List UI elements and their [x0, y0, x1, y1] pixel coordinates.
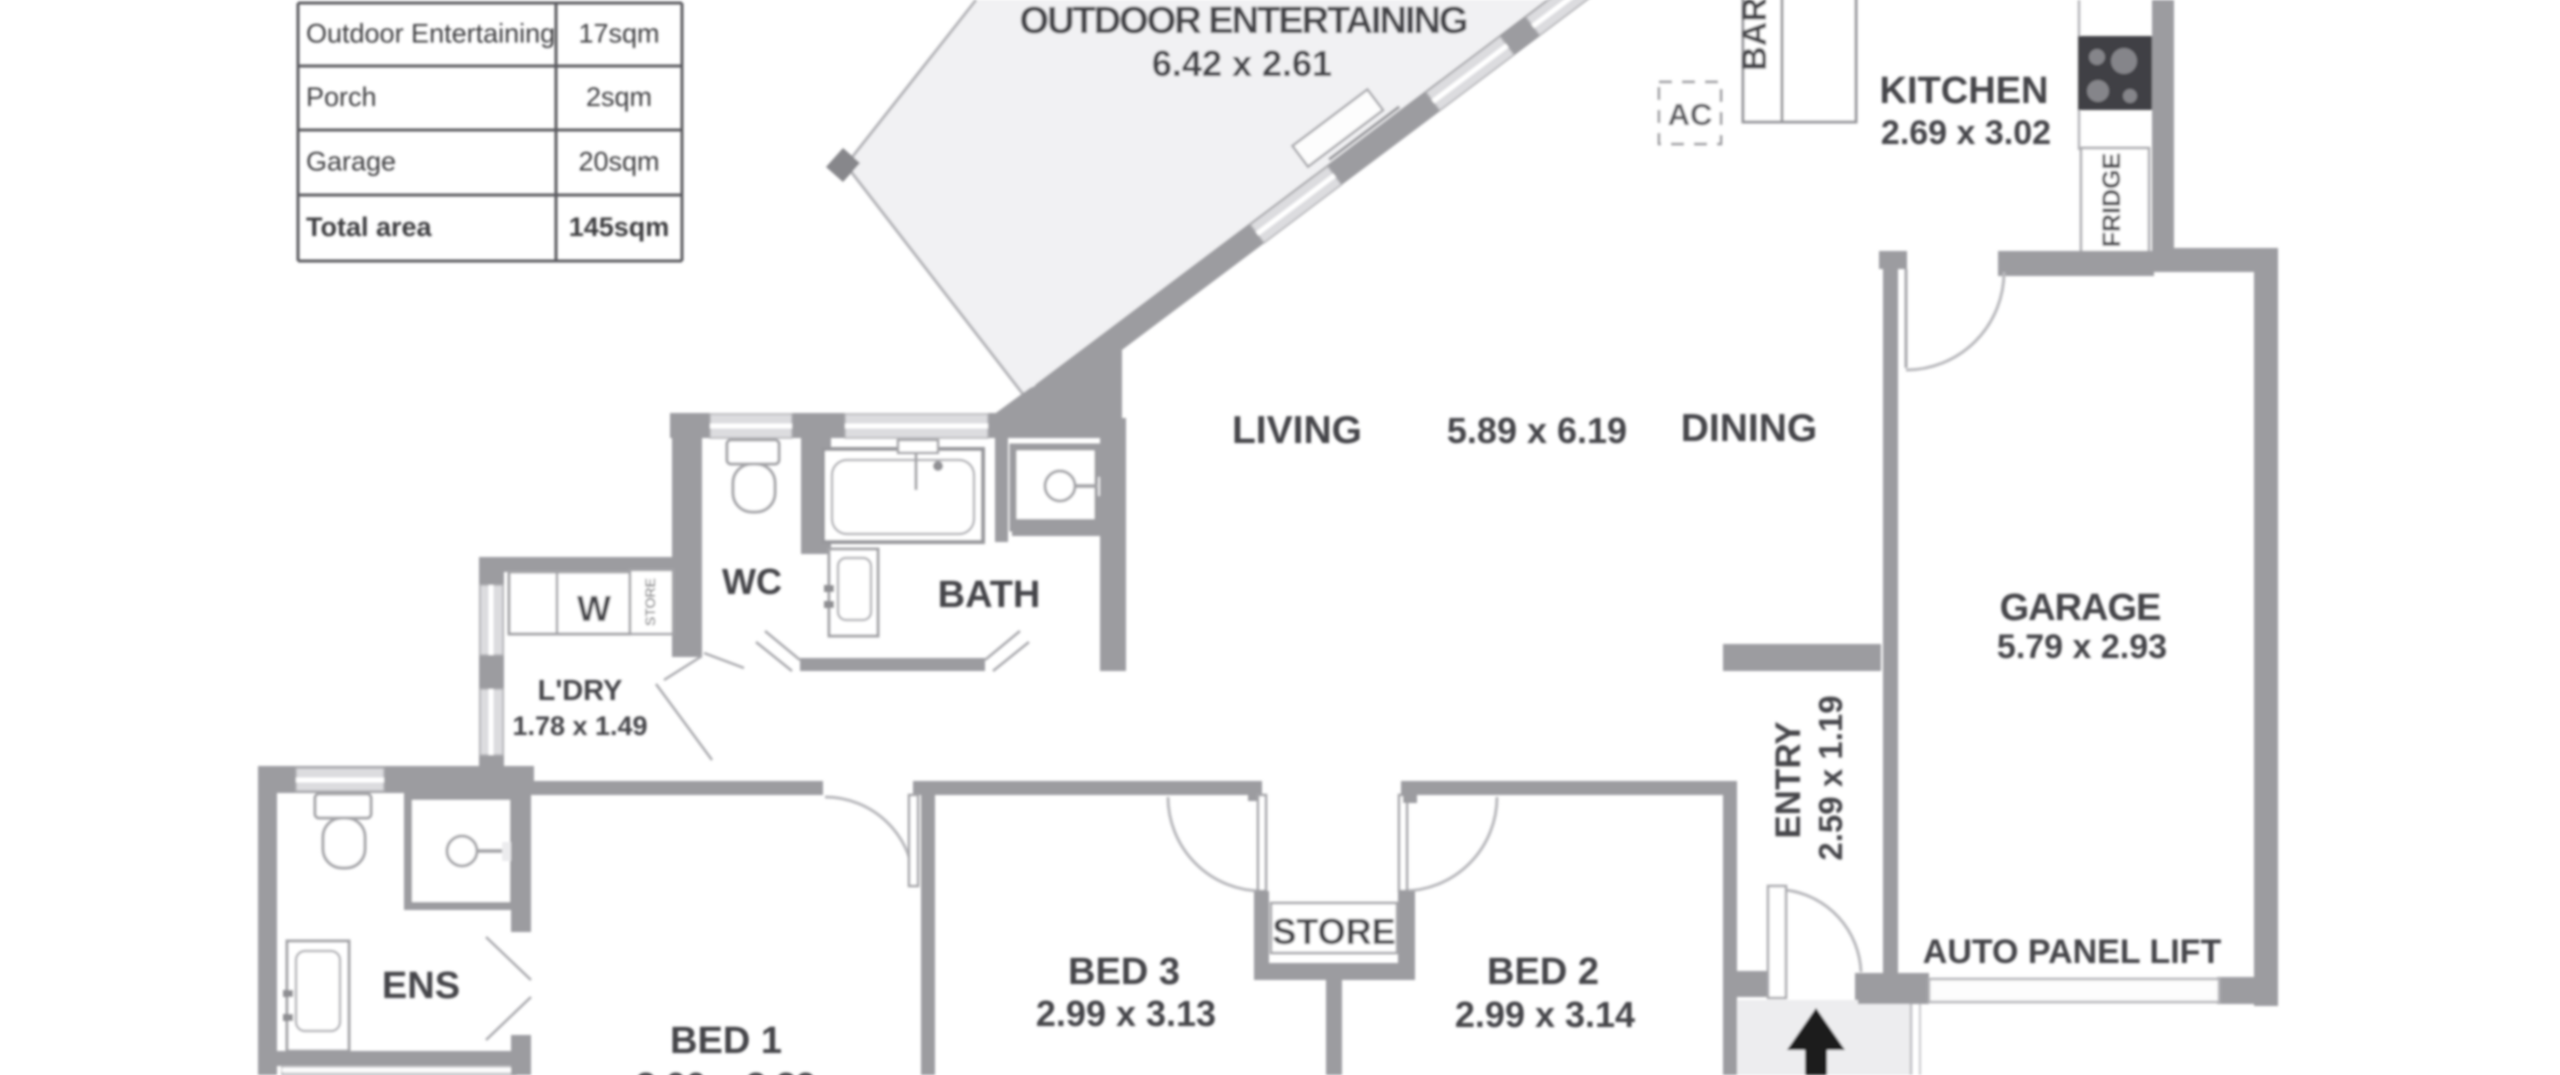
svg-text:AC: AC	[1668, 97, 1713, 132]
svg-text:WC: WC	[722, 561, 782, 602]
svg-text:Garage: Garage	[306, 147, 396, 177]
svg-text:BED 1: BED 1	[670, 1020, 782, 1062]
svg-text:2sqm: 2sqm	[586, 82, 652, 112]
svg-text:2.99 x 3.13: 2.99 x 3.13	[1036, 993, 1216, 1034]
svg-text:3.00 x 3.29: 3.00 x 3.29	[636, 1065, 816, 1075]
svg-text:20sqm: 20sqm	[578, 147, 659, 177]
svg-text:Outdoor Entertaining: Outdoor Entertaining	[306, 19, 555, 49]
svg-text:ENS: ENS	[382, 965, 460, 1007]
svg-text:OUTDOOR ENTERTAINING: OUTDOOR ENTERTAINING	[1020, 0, 1467, 42]
svg-text:W: W	[577, 588, 611, 629]
svg-text:FRIDGE: FRIDGE	[2098, 153, 2126, 247]
svg-text:DINING: DINING	[1681, 407, 1818, 450]
svg-text:LIVING: LIVING	[1232, 409, 1362, 452]
svg-text:KITCHEN: KITCHEN	[1880, 70, 2049, 112]
svg-text:BATH: BATH	[938, 574, 1041, 616]
svg-text:2.59 x 1.19: 2.59 x 1.19	[1812, 695, 1849, 860]
svg-text:2.99 x 3.14: 2.99 x 3.14	[1455, 994, 1635, 1035]
svg-text:6.42 x 2.61: 6.42 x 2.61	[1152, 43, 1332, 84]
svg-text:BAR: BAR	[1736, 0, 1774, 71]
svg-text:17sqm: 17sqm	[578, 19, 659, 49]
svg-text:ENTRY: ENTRY	[1769, 721, 1808, 838]
svg-text:AUTO PANEL LIFT: AUTO PANEL LIFT	[1923, 933, 2222, 971]
svg-text:L'DRY: L'DRY	[538, 675, 623, 707]
svg-text:GARAGE: GARAGE	[2000, 587, 2161, 629]
svg-text:BED 3: BED 3	[1068, 951, 1180, 993]
svg-text:STORE: STORE	[642, 578, 658, 626]
svg-text:1.78 x 1.49: 1.78 x 1.49	[512, 711, 647, 741]
svg-text:Porch: Porch	[306, 82, 377, 112]
svg-text:145sqm: 145sqm	[569, 212, 670, 242]
svg-text:2.69 x 3.02: 2.69 x 3.02	[1881, 114, 2051, 152]
svg-text:5.79 x 2.93: 5.79 x 2.93	[1997, 628, 2167, 666]
svg-text:STORE: STORE	[1272, 911, 1395, 952]
svg-text:Total area: Total area	[306, 212, 433, 242]
svg-text:5.89 x 6.19: 5.89 x 6.19	[1447, 410, 1627, 451]
svg-text:BED 2: BED 2	[1487, 951, 1599, 993]
